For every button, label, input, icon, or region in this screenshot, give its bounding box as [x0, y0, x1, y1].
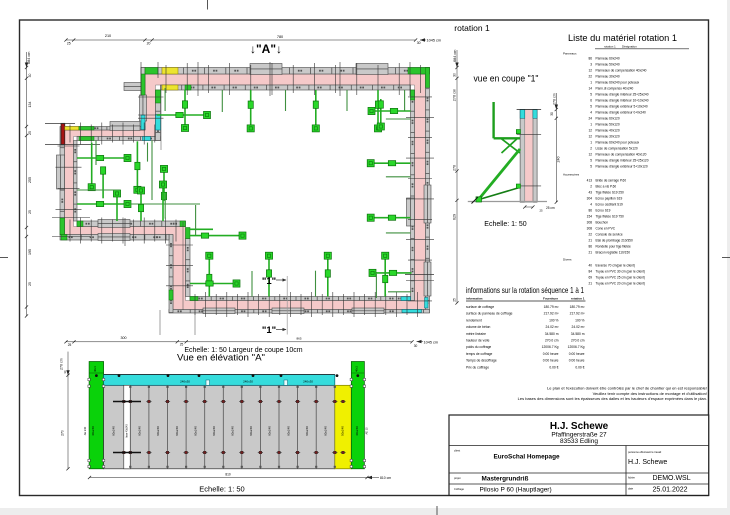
svg-text:0:00 heure: 0:00 heure — [543, 352, 559, 356]
svg-text:Tige filetée S19 750: Tige filetée S19 750 — [596, 215, 624, 219]
svg-text:210: 210 — [105, 34, 111, 38]
svg-text:60x240: 60x240 — [193, 426, 197, 436]
svg-text:810 cm: 810 cm — [380, 476, 391, 480]
svg-text:86: 86 — [588, 209, 592, 213]
svg-text:12: 12 — [588, 135, 592, 139]
svg-text:rotation 1: rotation 1 — [604, 45, 616, 49]
svg-text:client: client — [454, 449, 460, 453]
svg-text:Tuyau en PVC 25 cm (par le cli: Tuyau en PVC 25 cm (par le client) — [596, 276, 646, 280]
svg-text:2: 2 — [590, 185, 592, 189]
svg-text:Le plan et l'exécution doivent: Le plan et l'exécution doivent être cont… — [547, 386, 707, 391]
svg-text:304: 304 — [587, 197, 593, 201]
svg-text:30: 30 — [453, 73, 457, 77]
svg-text:22: 22 — [588, 75, 592, 79]
svg-text:30: 30 — [414, 344, 418, 348]
svg-text:12: 12 — [588, 129, 592, 133]
svg-text:2: 2 — [590, 147, 592, 151]
svg-text:60x240: 60x240 — [231, 426, 235, 436]
svg-text:180.79 m²: 180.79 m² — [570, 305, 586, 309]
svg-text:surface du panneau de coffrage: surface du panneau de coffrage — [466, 312, 513, 316]
svg-text:Panneau d'angle extérieur 5+10: Panneau d'angle extérieur 5+10x120 — [596, 165, 648, 169]
svg-text:H.J. Schewe: H.J. Schewe — [628, 459, 667, 466]
svg-text:270: 270 — [61, 430, 65, 436]
svg-text:traverse 70 cm(par le client): traverse 70 cm(par le client) — [596, 264, 636, 268]
svg-text:240x30: 240x30 — [243, 379, 253, 383]
svg-text:Vue en élévation "A": Vue en élévation "A" — [177, 353, 265, 363]
svg-text:projet: projet — [454, 476, 461, 480]
svg-text:50x240: 50x240 — [341, 426, 345, 436]
svg-text:84: 84 — [588, 270, 592, 274]
svg-text:25: 25 — [67, 41, 71, 45]
svg-text:240x30: 240x30 — [180, 379, 190, 383]
svg-text:60x240: 60x240 — [324, 426, 328, 436]
svg-text:5: 5 — [590, 105, 592, 109]
svg-text:12: 12 — [588, 69, 592, 73]
svg-text:rendement: rendement — [466, 318, 482, 322]
svg-text:1045 cm: 1045 cm — [424, 340, 439, 344]
svg-text:DEMO.WSL: DEMO.WSL — [653, 475, 691, 482]
svg-text:Panneau 30x240: Panneau 30x240 — [596, 75, 620, 79]
svg-text:684 cm: 684 cm — [27, 52, 31, 64]
svg-text:information: information — [466, 297, 483, 301]
svg-text:25: 25 — [28, 131, 32, 135]
svg-text:Bloc a vis P.60: Bloc a vis P.60 — [596, 185, 617, 189]
svg-text:780: 780 — [277, 35, 283, 39]
svg-text:60x240: 60x240 — [305, 426, 309, 436]
svg-text:"1": "1" — [262, 325, 276, 336]
svg-text:fichier: fichier — [628, 476, 635, 480]
svg-text:40x1: 40x1 — [355, 366, 359, 372]
svg-text:270 cm: 270 cm — [552, 93, 556, 105]
svg-text:0.00 €: 0.00 € — [549, 365, 558, 369]
svg-text:300: 300 — [121, 336, 127, 340]
svg-text:21: 21 — [588, 239, 592, 243]
svg-text:69: 69 — [588, 276, 592, 280]
svg-text:1045 cm: 1045 cm — [427, 38, 442, 42]
svg-text:30: 30 — [28, 74, 32, 78]
svg-text:Les bases des dimensions sont: Les bases des dimensions sont les épaiss… — [518, 396, 707, 401]
svg-text:60x240: 60x240 — [138, 426, 142, 436]
svg-text:mètre linéaire: mètre linéaire — [466, 332, 486, 336]
svg-text:Panneau d'angle extérieur 0+0x: Panneau d'angle extérieur 0+0x240 — [596, 111, 647, 115]
svg-text:0:00 heure: 0:00 heure — [543, 359, 559, 363]
svg-text:3: 3 — [590, 63, 592, 67]
svg-text:60x240: 60x240 — [249, 426, 253, 436]
svg-text:25: 25 — [539, 209, 543, 213]
svg-text:60x240: 60x240 — [175, 426, 179, 436]
svg-text:AE 15: AE 15 — [364, 427, 368, 435]
svg-text:24.02 m³: 24.02 m³ — [545, 325, 559, 329]
svg-text:30: 30 — [417, 41, 421, 45]
svg-text:12006.7 Kg: 12006.7 Kg — [568, 345, 585, 349]
svg-text:60x240: 60x240 — [212, 426, 216, 436]
svg-text:date: date — [628, 487, 634, 491]
svg-text:Cone en PVC: Cone en PVC — [596, 227, 616, 231]
svg-text:Panneaux: Panneaux — [563, 52, 577, 56]
svg-text:surface de coffrage: surface de coffrage — [466, 305, 494, 309]
svg-text:270.0 cm: 270.0 cm — [545, 339, 559, 343]
svg-text:Coffrage: Coffrage — [454, 487, 464, 491]
svg-text:Pilosio P 60 (Hauptlager): Pilosio P 60 (Hauptlager) — [480, 487, 552, 494]
svg-text:86: 86 — [588, 57, 592, 61]
svg-text:Mastergrundriß: Mastergrundriß — [482, 475, 529, 482]
svg-text:270 cm: 270 cm — [453, 89, 457, 101]
svg-text:Liste du matériel rotation 1: Liste du matériel rotation 1 — [568, 33, 677, 43]
svg-text:5: 5 — [590, 159, 592, 163]
svg-text:Veuillez tenir compte des inst: Veuillez tenir compte des instructions d… — [593, 391, 707, 396]
svg-text:14: 14 — [588, 87, 592, 91]
svg-text:Lisse de compensation 5x120: Lisse de compensation 5x120 — [596, 147, 638, 151]
svg-text:60x240: 60x240 — [112, 426, 116, 436]
svg-text:0:00 heure: 0:00 heure — [569, 352, 585, 356]
svg-text:40x1: 40x1 — [93, 366, 97, 372]
svg-text:Panneau 50x240: Panneau 50x240 — [596, 63, 620, 67]
svg-text:40x240: 40x240 — [355, 426, 359, 436]
svg-text:24: 24 — [588, 117, 592, 121]
svg-text:217.92 m²: 217.92 m² — [544, 312, 560, 316]
svg-text:Accessoires: Accessoires — [563, 173, 580, 177]
svg-text:Echelle: 1: 50: Echelle: 1: 50 — [484, 221, 527, 228]
svg-text:H.J. Schewe: H.J. Schewe — [550, 421, 609, 432]
svg-text:4: 4 — [590, 203, 592, 207]
svg-text:60x240: 60x240 — [156, 426, 160, 436]
svg-text:Panneau 40x120: Panneau 40x120 — [596, 129, 620, 133]
svg-text:personne effectuant le travail: personne effectuant le travail — [628, 450, 662, 454]
svg-text:poids du coffrage: poids du coffrage — [466, 345, 491, 349]
svg-text:134: 134 — [28, 102, 32, 108]
svg-text:informations sur la rotation: informations sur la rotation séquence 1 … — [466, 285, 584, 295]
svg-text:40: 40 — [588, 264, 592, 268]
svg-text:hauteur de voile: hauteur de voile — [466, 339, 490, 343]
svg-text:volume de béton: volume de béton — [466, 325, 491, 329]
svg-text:Echelle: 1: 50: Echelle: 1: 50 — [199, 485, 244, 494]
svg-text:4: 4 — [590, 111, 592, 115]
svg-text:240x30: 240x30 — [303, 379, 313, 383]
svg-text:5: 5 — [590, 93, 592, 97]
svg-text:308: 308 — [587, 227, 593, 231]
svg-text:Divers: Divers — [563, 258, 572, 262]
svg-text:270: 270 — [453, 165, 457, 171]
svg-text:629: 629 — [453, 214, 457, 220]
svg-text:↓"A"↓: ↓"A"↓ — [250, 42, 282, 56]
svg-text:Tuyau en PVC 30 cm (par le cli: Tuyau en PVC 30 cm (par le client) — [596, 270, 646, 274]
svg-text:43: 43 — [588, 191, 592, 195]
svg-text:Bracon reglable 110/150: Bracon reglable 110/150 — [596, 251, 631, 255]
svg-text:Panneau d'angle intérieur 25+2: Panneau d'angle intérieur 25+25x240 — [596, 93, 649, 97]
svg-text:Fourniture: Fourniture — [543, 297, 558, 301]
svg-text:Panneau 50x120: Panneau 50x120 — [596, 123, 620, 127]
svg-text:Panneau d'angle intérieur 10+1: Panneau d'angle intérieur 10+10x240 — [596, 99, 649, 103]
svg-text:1: 1 — [590, 123, 592, 127]
svg-text:20: 20 — [147, 41, 151, 45]
svg-text:21: 21 — [588, 282, 592, 286]
svg-text:83533 Edling: 83533 Edling — [560, 438, 598, 445]
svg-text:Bouchon: Bouchon — [596, 221, 609, 225]
svg-text:Panneaux de compensation 40x24: Panneaux de compensation 40x240 — [596, 69, 647, 73]
svg-text:100 %: 100 % — [575, 318, 584, 322]
svg-text:1: 1 — [590, 81, 592, 85]
svg-text:6: 6 — [590, 99, 592, 103]
svg-text:86: 86 — [588, 245, 592, 249]
svg-text:24.02 m³: 24.02 m³ — [571, 325, 585, 329]
svg-text:217.92 m²: 217.92 m² — [570, 312, 586, 316]
svg-text:25: 25 — [28, 282, 32, 286]
svg-text:308: 308 — [587, 221, 593, 225]
svg-text:0.00 €: 0.00 € — [575, 365, 584, 369]
svg-text:30: 30 — [550, 112, 554, 116]
svg-text:Temps de décoffrage: Temps de décoffrage — [466, 359, 497, 363]
svg-text:60x240: 60x240 — [286, 426, 290, 436]
svg-text:270.0 cm: 270.0 cm — [571, 339, 585, 343]
svg-text:34.580 m: 34.580 m — [545, 332, 559, 336]
svg-text:25: 25 — [180, 343, 184, 347]
svg-text:25: 25 — [28, 210, 32, 214]
svg-text:Prix du coffrage: Prix du coffrage — [466, 365, 489, 369]
svg-text:Panneau 60x240 pour poteaux: Panneau 60x240 pour poteaux — [596, 81, 640, 85]
svg-text:Panneau 30x120: Panneau 30x120 — [596, 135, 620, 139]
svg-text:810: 810 — [225, 473, 231, 477]
svg-text:vue en coupe "1": vue en coupe "1" — [474, 74, 539, 84]
svg-text:21: 21 — [588, 251, 592, 255]
svg-text:rotation 1: rotation 1 — [571, 297, 585, 301]
svg-text:0:00 heure: 0:00 heure — [569, 359, 585, 363]
svg-text:Panneaux de compensation 40x12: Panneaux de compensation 40x120 — [596, 153, 647, 157]
svg-text:154: 154 — [587, 215, 593, 219]
svg-text:25: 25 — [68, 343, 72, 347]
svg-text:60x240: 60x240 — [268, 426, 272, 436]
svg-text:temps de coffrage: temps de coffrage — [466, 352, 492, 356]
svg-text:rotation 1: rotation 1 — [454, 23, 490, 33]
svg-text:Ecrou S19: Ecrou S19 — [596, 209, 611, 213]
svg-text:413: 413 — [587, 179, 593, 183]
svg-text:40x240: 40x240 — [91, 426, 95, 436]
svg-text:22: 22 — [588, 233, 592, 237]
svg-text:Panneau 60x120: Panneau 60x120 — [596, 117, 620, 121]
svg-text:Panneau d'angle extérieur 5+10: Panneau d'angle extérieur 5+10x240 — [596, 105, 648, 109]
svg-text:25: 25 — [453, 298, 457, 302]
svg-text:Bride de serrage P.60: Bride de serrage P.60 — [596, 179, 627, 183]
svg-text:Console de service: Console de service — [596, 233, 623, 237]
svg-text:1: 1 — [590, 141, 592, 145]
svg-text:865: 865 — [296, 336, 301, 340]
svg-text:Panneau d'angle intérieur 25+2: Panneau d'angle intérieur 25+25x120 — [596, 159, 649, 163]
svg-text:Tuyau en PVC 20 cm (par le cli: Tuyau en PVC 20 cm (par le client) — [596, 282, 646, 286]
svg-text:Désignation: Désignation — [622, 45, 637, 49]
svg-text:Panneau 60x240 pour poteaux: Panneau 60x240 pour poteaux — [596, 141, 640, 145]
svg-text:Ecrou oscillant S19: Ecrou oscillant S19 — [596, 203, 624, 207]
svg-text:34.580 m: 34.580 m — [571, 332, 585, 336]
svg-text:180.79 m²: 180.79 m² — [544, 305, 560, 309]
svg-text:100 %: 100 % — [549, 318, 558, 322]
svg-text:240: 240 — [557, 157, 561, 163]
svg-text:684 cm: 684 cm — [453, 50, 457, 62]
svg-text:12: 12 — [588, 153, 592, 157]
svg-text:Panneau 60x240: Panneau 60x240 — [596, 57, 620, 61]
svg-text:25.01.2022: 25.01.2022 — [653, 487, 688, 494]
svg-text:5: 5 — [590, 165, 592, 169]
svg-text:"1": "1" — [262, 276, 276, 287]
svg-text:255: 255 — [28, 177, 32, 183]
svg-text:Rondelle pour tige filetée: Rondelle pour tige filetée — [596, 245, 631, 249]
svg-text:Tige filetée S19 250: Tige filetée S19 250 — [596, 191, 624, 195]
svg-text:25 cm: 25 cm — [546, 206, 555, 210]
svg-text:12006.7 Kg: 12006.7 Kg — [542, 345, 559, 349]
svg-text:EuroSchal Homepage: EuroSchal Homepage — [494, 454, 560, 461]
svg-text:Pann.di compenso 40x240: Pann.di compenso 40x240 — [596, 87, 634, 91]
svg-text:lisse 40x240: lisse 40x240 — [125, 424, 128, 438]
svg-text:AE 240: AE 240 — [83, 426, 87, 435]
svg-text:195: 195 — [28, 249, 32, 255]
svg-text:270 cm: 270 cm — [60, 358, 64, 370]
svg-text:Ecrou papillon S19: Ecrou papillon S19 — [596, 197, 623, 201]
svg-text:Etai de plombage 210/350: Etai de plombage 210/350 — [596, 239, 633, 243]
